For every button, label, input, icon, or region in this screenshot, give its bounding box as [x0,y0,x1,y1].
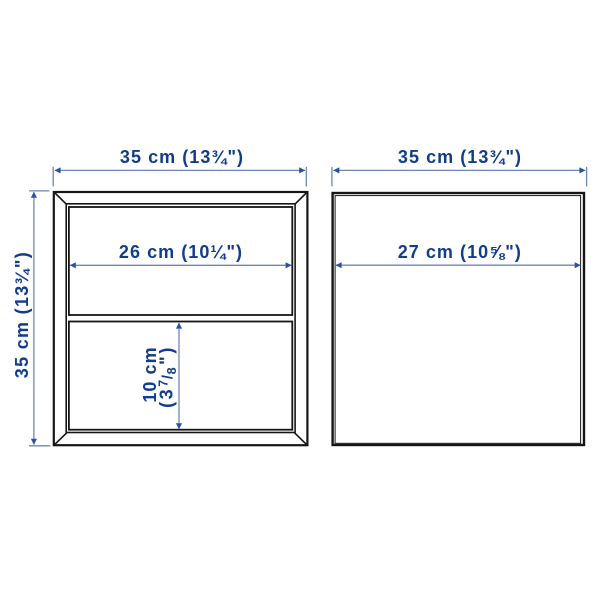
svg-text:35 cm (13¾"): 35 cm (13¾") [120,147,244,167]
svg-text:35 cm (13¾"): 35 cm (13¾") [12,251,32,378]
svg-text:35 cm (13¾"): 35 cm (13¾") [398,147,522,167]
svg-text:27 cm (10⅝"): 27 cm (10⅝") [398,242,522,262]
svg-text:26 cm (10¼"): 26 cm (10¼") [119,242,243,262]
svg-text:(37/8"): (37/8") [156,345,179,408]
